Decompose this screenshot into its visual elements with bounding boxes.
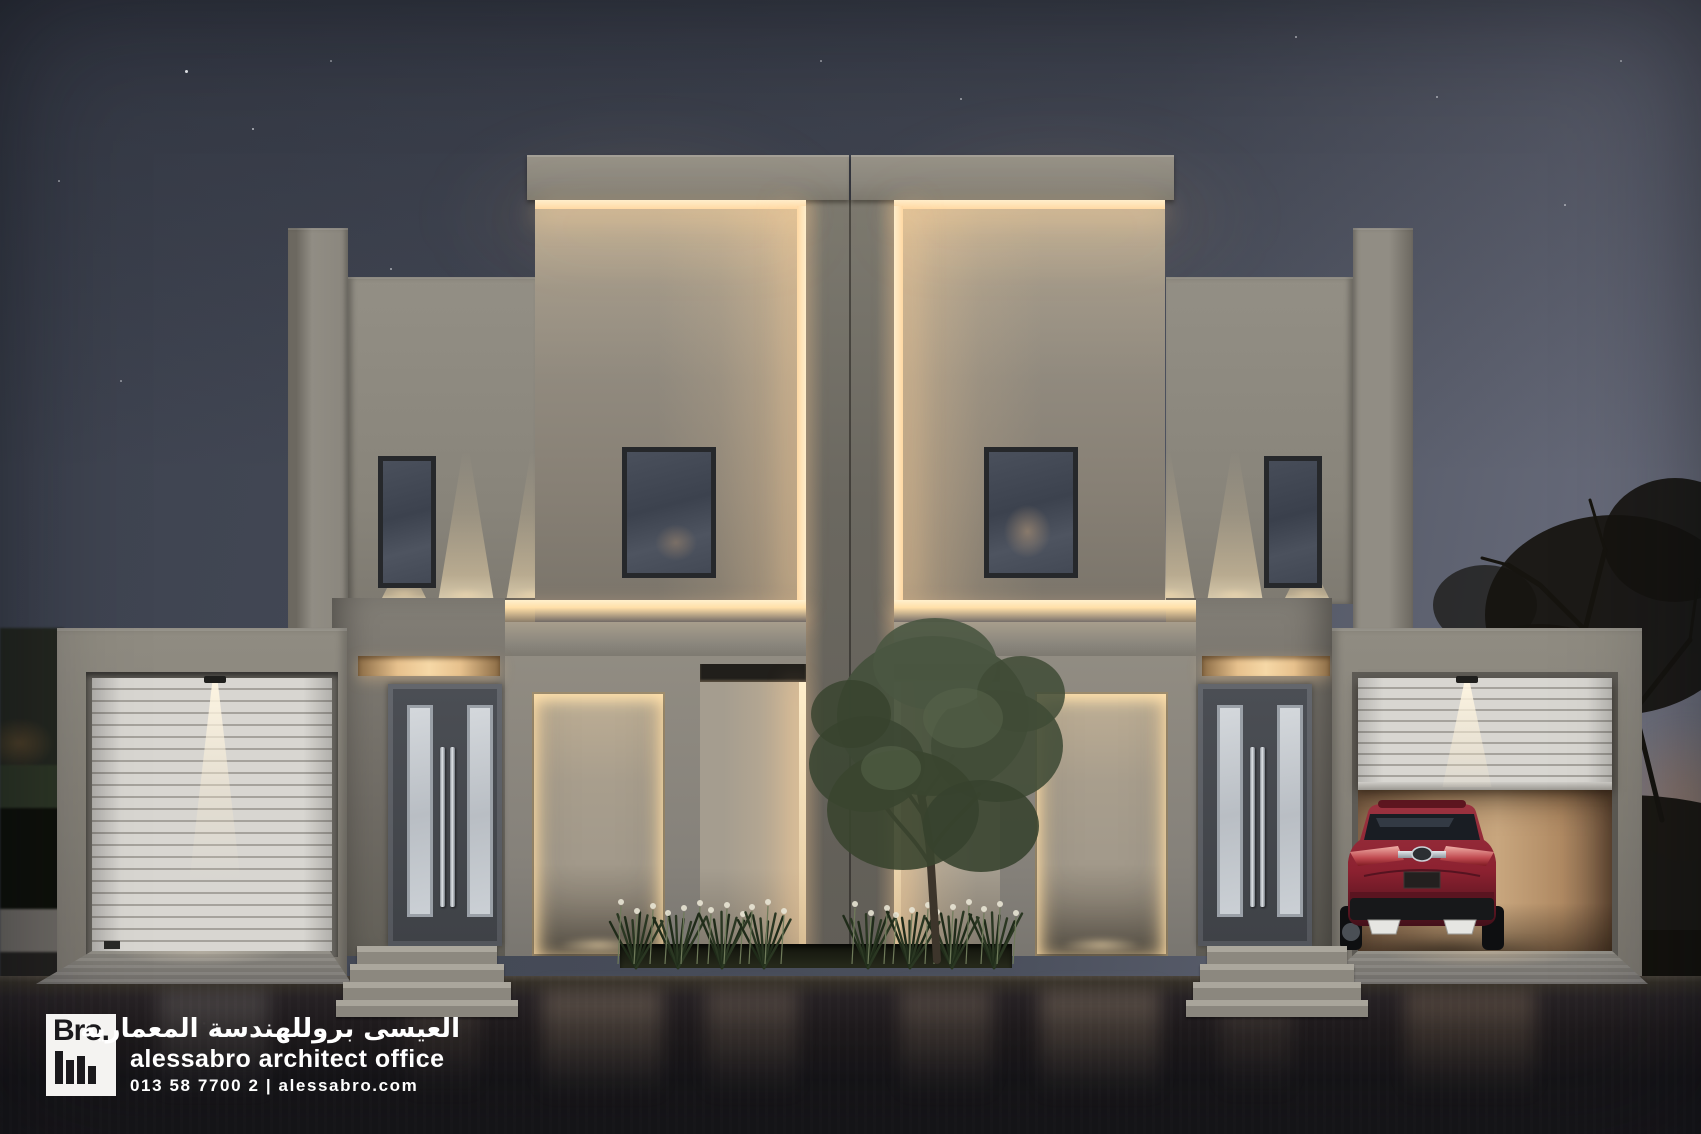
entry-steps <box>0 0 1701 1134</box>
step-riser <box>1193 982 1361 1000</box>
step-riser <box>1207 946 1347 964</box>
studio-contact: 013 58 7700 2 | alessabro.com <box>130 1076 418 1096</box>
step-riser <box>1186 1000 1368 1017</box>
logo-bar <box>77 1056 85 1084</box>
studio-name-arabic: العيسى بروللهندسة المعمارية <box>130 1014 460 1044</box>
step-riser <box>357 946 497 964</box>
step-riser <box>343 982 511 1000</box>
step-riser <box>1200 964 1354 982</box>
logo-bar <box>55 1051 63 1084</box>
studio-name-english: alessabro architect office <box>130 1045 445 1074</box>
step-riser <box>350 964 504 982</box>
logo-bar <box>66 1060 74 1084</box>
logo-bar <box>88 1066 96 1084</box>
villa-night-render: Bro. العيسى بروللهندسة المعمارية alessab… <box>0 0 1701 1134</box>
